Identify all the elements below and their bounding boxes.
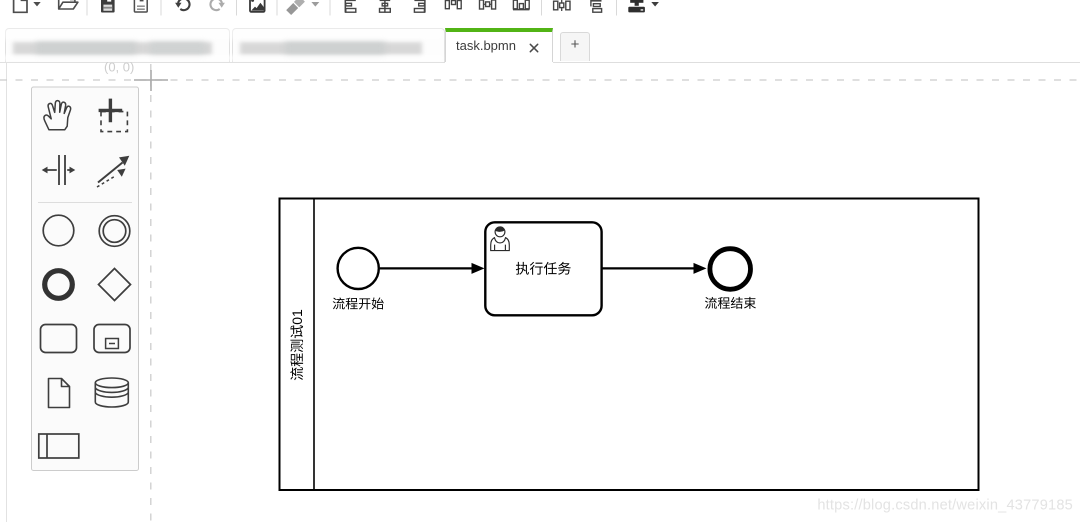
svg-text:https://blog.csdn.net/weixin_4: https://blog.csdn.net/weixin_43779185 <box>817 498 1073 514</box>
svg-text:(0, 0): (0, 0) <box>104 62 134 75</box>
svg-text:01: 01 <box>289 309 305 325</box>
